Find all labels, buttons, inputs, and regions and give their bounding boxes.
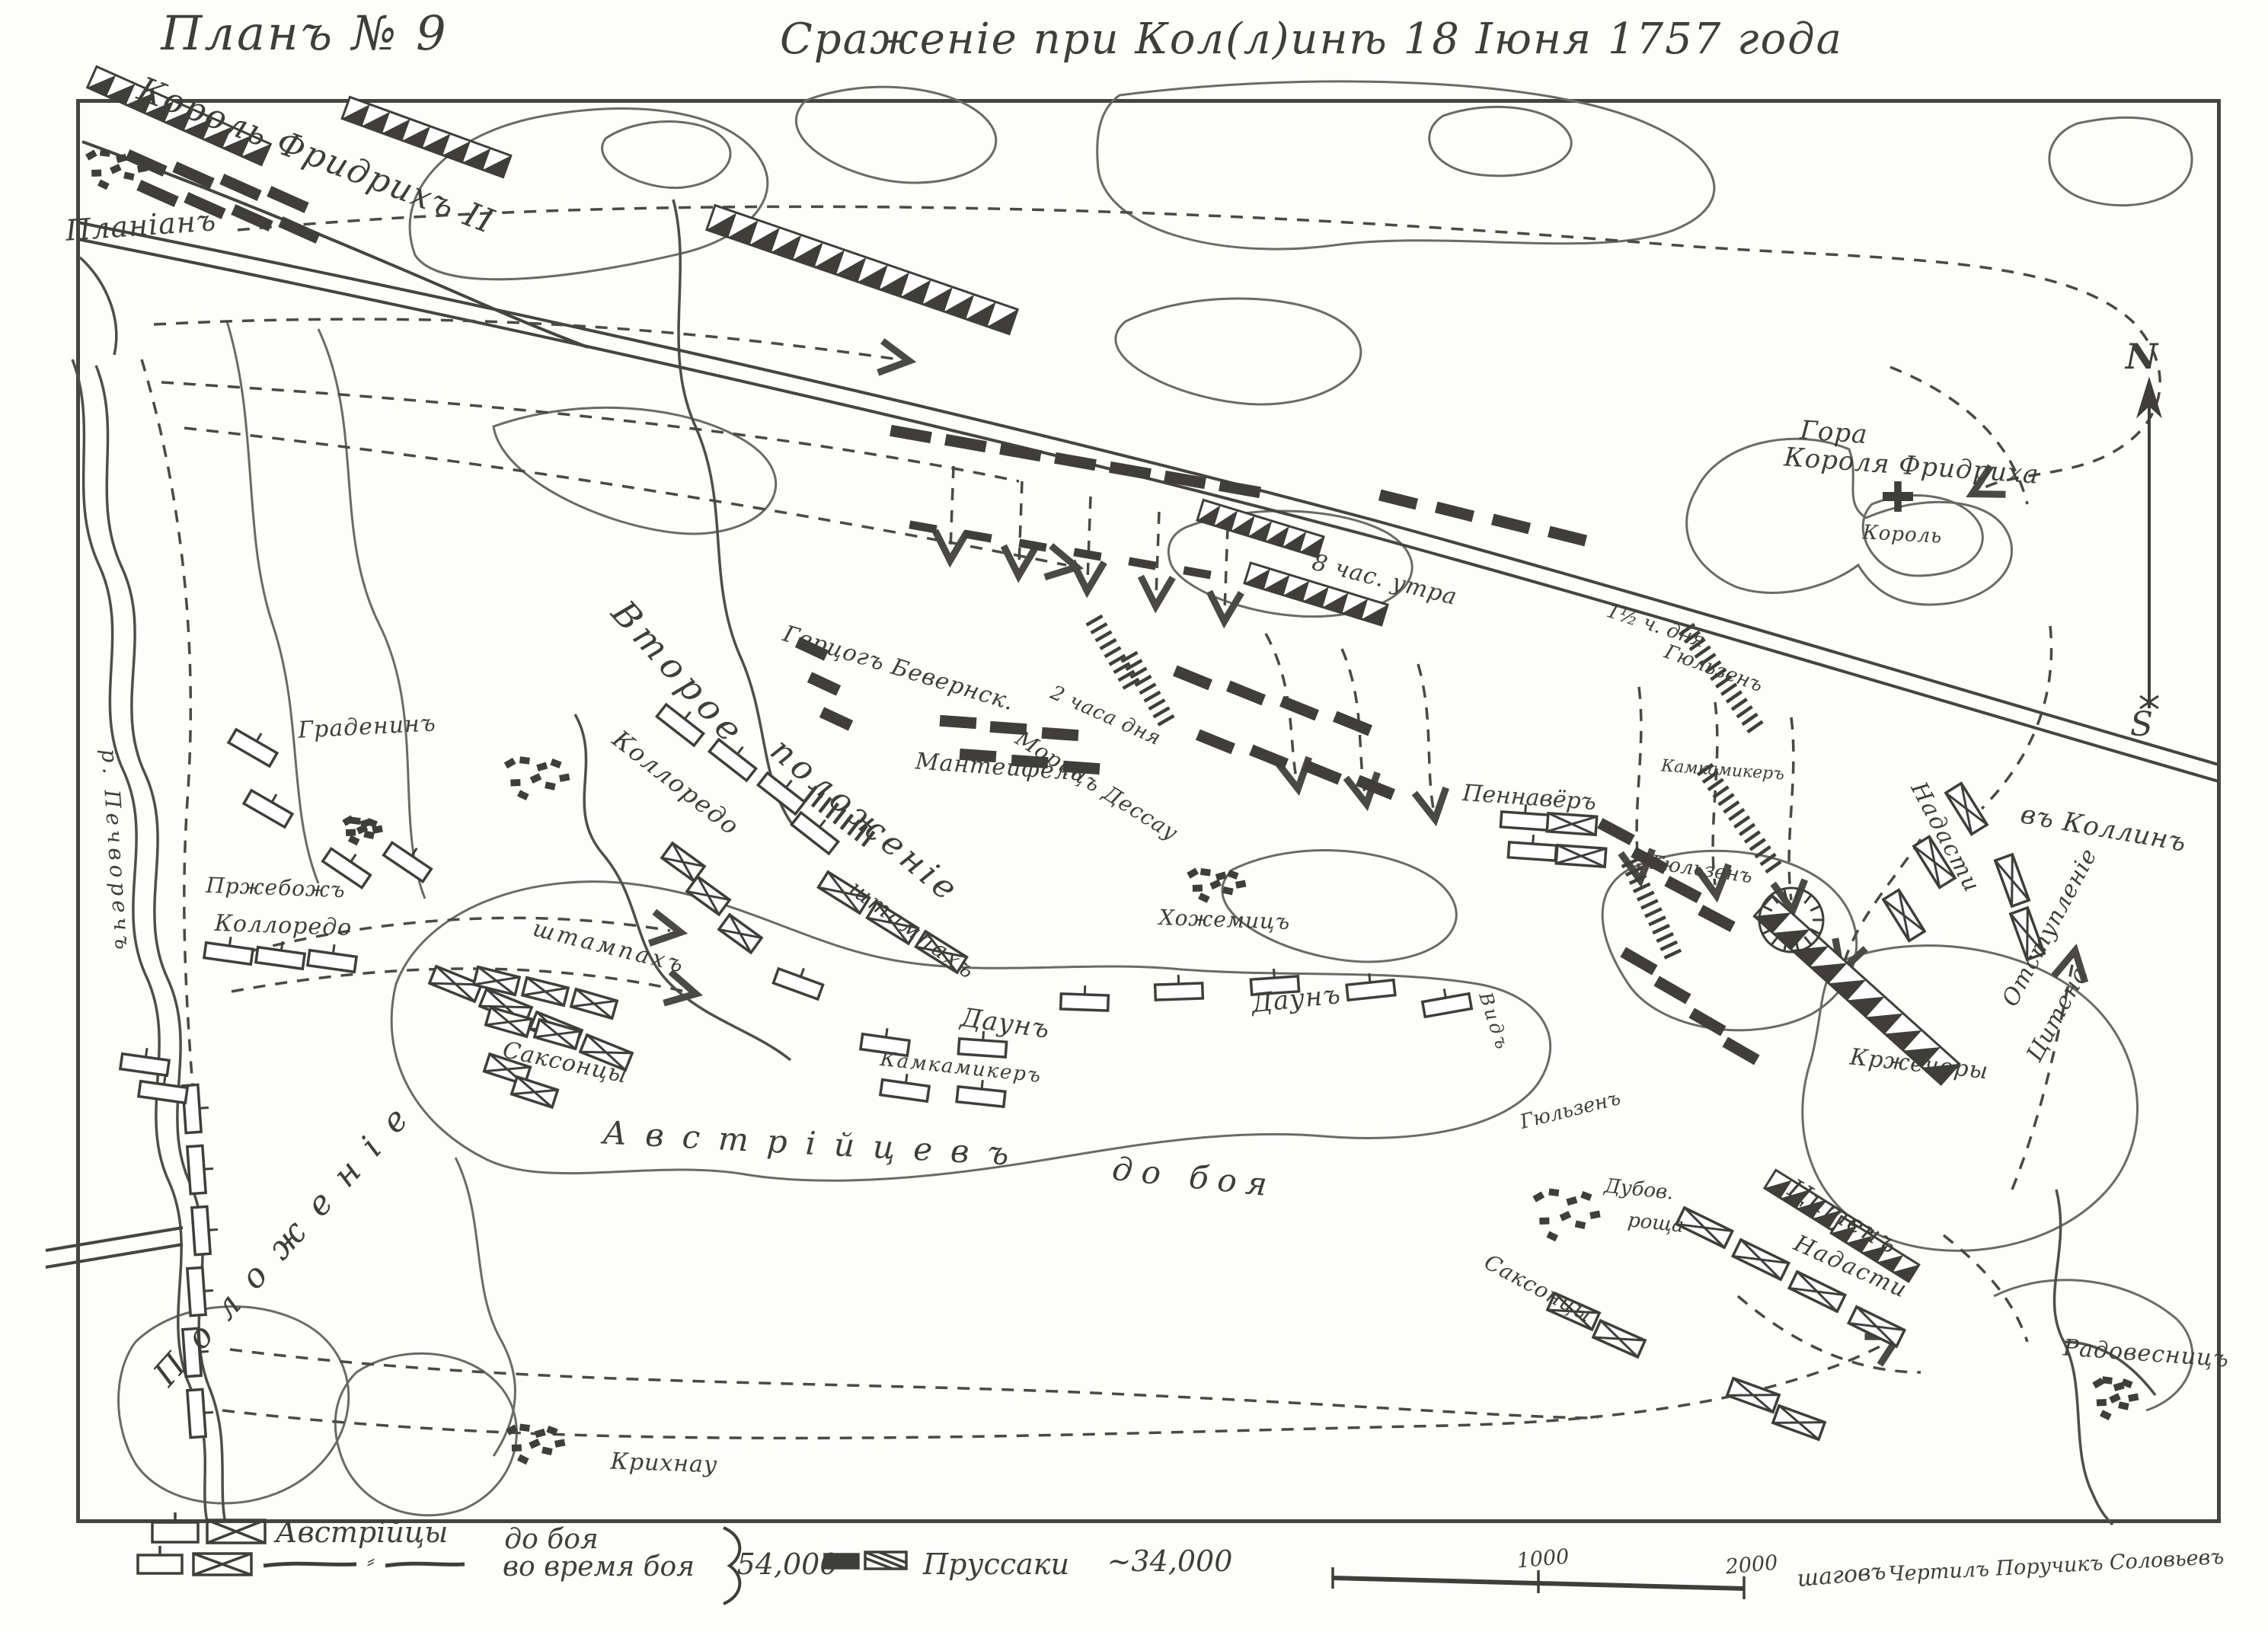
label-to-kollin: въ Коллинъ — [2019, 801, 2189, 856]
label-dubov-2: роща — [1627, 1210, 1685, 1236]
legend-austrians-total: 54,000 — [737, 1550, 839, 1579]
scale-units-label: шаговъ — [1796, 1560, 1886, 1591]
label-saxons-2: Саксонцы — [1481, 1251, 1596, 1326]
label-saxons-1: Саксонцы — [500, 1039, 629, 1087]
label-before-battle: до боя — [1110, 1153, 1277, 1202]
label-khozhemitz: Хожемицъ — [1158, 907, 1291, 933]
label-time-130pm: 1½ ч. дня — [1604, 601, 1707, 651]
label-gradenin: Граденинъ — [298, 712, 437, 742]
label-hulsen-1: Гюльзенъ — [1662, 642, 1765, 696]
label-stampach-1: штампахъ — [531, 918, 688, 978]
label-nadasti-1: Надасти — [1906, 779, 1983, 897]
label-krichnau: Крихнау — [610, 1451, 718, 1477]
label-stampach-2: штампахъ — [845, 877, 980, 985]
scale-label-2000: 2000 — [1725, 1553, 1779, 1578]
label-radovesnitz: Радовесницъ — [2062, 1337, 2230, 1371]
label-hulsen-3: Гюльзенъ — [1518, 1088, 1622, 1132]
compass-south-label: S — [2130, 708, 2153, 742]
compass-north-label: N — [2126, 339, 2158, 374]
labels-layer: Планъ № 9 Сраженіе при Кол(л)инѣ 18 Іюня… — [0, 0, 2268, 1632]
label-colloredo-2: Коллоредо — [214, 912, 353, 940]
legend-during-battle-label: во время боя — [503, 1554, 695, 1581]
label-kamkamiker-2: Камкамикеръ — [880, 1049, 1043, 1086]
legend-austrians-label: Австрійцы — [276, 1518, 449, 1547]
legend-prussians-total: ~34,000 — [1107, 1547, 1233, 1576]
map-page: Планъ № 9 Сраженіе при Кол(л)инѣ 18 Іюня… — [0, 0, 2268, 1632]
legend-prussians-label: Пруссаки — [923, 1550, 1069, 1579]
label-pennaver: Пеннавёръ — [1461, 782, 1596, 814]
label-daun-1: Даунъ — [959, 1004, 1051, 1043]
label-daun-2: Даунъ — [1251, 982, 1343, 1017]
label-time-2pm: 2 часа дня — [1048, 682, 1164, 749]
label-hulsen-2: Гюльзенъ — [1649, 853, 1753, 887]
legend-ditto-mark: ⸗ — [367, 1550, 375, 1573]
label-bevern: Герцогъ Бевернск. — [781, 622, 1017, 714]
page-title: Планъ № 9 — [161, 10, 448, 57]
label-krzhechory: Кржечоры — [1849, 1046, 1990, 1084]
cartographer-signature: Чертилъ Поручикъ Соловьевъ — [1888, 1547, 2225, 1585]
label-king-spot: Король — [1862, 522, 1943, 546]
scale-label-1000: 1000 — [1516, 1547, 1570, 1572]
label-przhebozh: Пржебожъ — [206, 875, 346, 901]
label-kamkamiker-1: Камкамикеръ — [1660, 758, 1784, 783]
label-time-8am: 8 час. утра — [1310, 551, 1459, 609]
label-position-before: Положеніе — [149, 1087, 427, 1392]
label-dubov-1: Дубов. — [1603, 1176, 1674, 1202]
label-planian: Планіанъ — [65, 206, 217, 245]
label-vid: Видъ — [1476, 990, 1513, 1054]
label-austrians-arc: Австрійцевъ — [602, 1116, 1027, 1171]
label-river-name: р. Печворечъ — [98, 748, 134, 954]
legend-before-battle-label: до боя — [504, 1526, 598, 1554]
label-hill-name-2: Короля Фридриха — [1783, 444, 2040, 487]
page-subtitle: Сраженіе при Кол(л)инѣ 18 Іюня 1757 года — [780, 18, 1843, 61]
